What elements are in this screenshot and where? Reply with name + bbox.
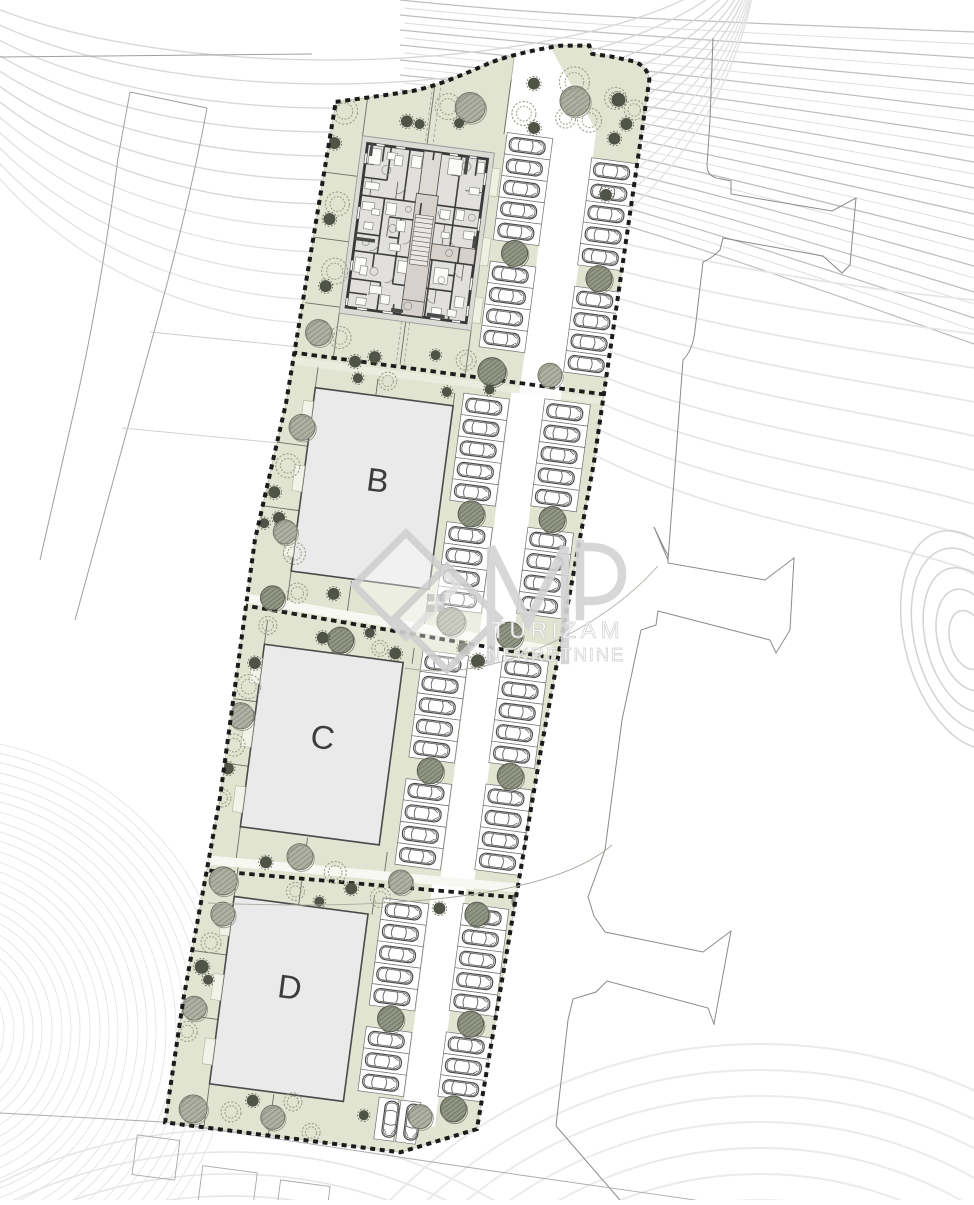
svg-text:C: C — [308, 717, 336, 757]
svg-text:D: D — [276, 967, 304, 1007]
svg-text:NEKRETNINE: NEKRETNINE — [487, 644, 625, 665]
svg-text:TURIZAM: TURIZAM — [491, 617, 624, 643]
